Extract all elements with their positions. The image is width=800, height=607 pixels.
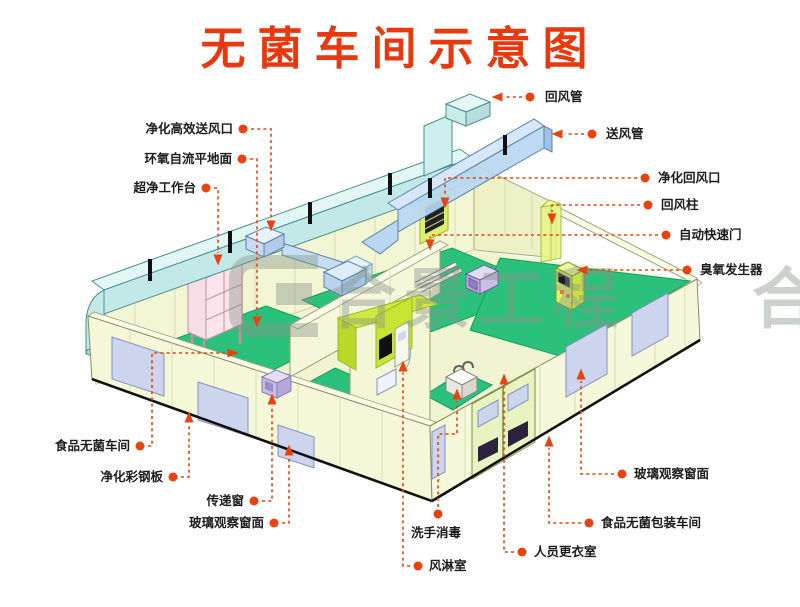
leader-arrow [545, 436, 554, 447]
label-text-air-shower: 风淋室 [429, 558, 467, 573]
leader-line [181, 424, 189, 477]
leader-dot [136, 442, 145, 451]
label-text-supply-duct: 送风管 [605, 126, 644, 141]
leader-line [251, 129, 271, 219]
label-group-ozone-generator: 臭氧发生器 [577, 262, 764, 277]
leader-dot [662, 231, 671, 240]
leader-line [549, 448, 581, 523]
label-text-hand-wash: 洗手消毒 [411, 525, 462, 540]
label-text-changing-room: 人员更衣室 [534, 544, 597, 559]
leader-dot [588, 130, 597, 139]
leader-dot [238, 155, 247, 164]
label-group-glass-window-left: 玻璃观察窗面 [189, 445, 294, 531]
leader-arrow [399, 361, 408, 372]
leader-arrow [441, 198, 450, 209]
leader-dot [270, 519, 279, 528]
leader-arrow [548, 214, 557, 225]
leader-arrow [453, 389, 462, 400]
label-text-packing-workshop: 食品无菌包装车间 [600, 515, 701, 530]
leader-arrow [214, 255, 223, 266]
label-text-return-air-column: 回风柱 [661, 197, 699, 212]
leader-line [403, 373, 410, 566]
leader-dot [683, 266, 692, 275]
label-group-supply-duct: 送风管 [552, 126, 644, 141]
leader-dot [618, 470, 627, 479]
label-group-return-duct: 回风管 [492, 89, 583, 104]
label-group-clean-bench: 超净工作台 [132, 180, 222, 266]
leader-dot [526, 93, 535, 102]
leader-line [148, 353, 226, 446]
leader-dot [434, 510, 443, 519]
leader-arrow [267, 221, 276, 232]
label-text-steel-panel: 净化彩钢板 [100, 469, 163, 484]
label-text-ozone-generator: 臭氧发生器 [700, 262, 763, 277]
label-group-sterile-workshop: 食品无菌车间 [54, 349, 239, 454]
label-group-return-air-column: 回风柱 [548, 197, 700, 225]
leader-line [430, 235, 658, 238]
leader-line [438, 401, 457, 507]
leader-line [250, 159, 257, 315]
label-text-hepa-supply-vent: 净化高效送风口 [145, 121, 233, 136]
label-group-hand-wash: 洗手消毒 [411, 389, 462, 541]
label-text-transfer-window: 传递窗 [205, 493, 244, 508]
leader-line [504, 386, 514, 552]
label-text-return-duct: 回风管 [545, 89, 583, 104]
leader-dot [518, 548, 527, 557]
leader-arrow [492, 93, 503, 102]
leader-line [581, 381, 614, 474]
leader-line [445, 178, 637, 196]
leader-arrow [577, 369, 586, 380]
diagram-page: 无菌车间示意图 [0, 0, 800, 607]
label-group-hepa-supply-vent: 净化高效送风口 [145, 121, 275, 232]
leader-arrow [228, 349, 239, 358]
leader-arrow [285, 445, 294, 456]
leader-dot [169, 473, 178, 482]
label-text-purifying-return-vent: 净化回风口 [658, 170, 721, 185]
label-group-packing-workshop: 食品无菌包装车间 [545, 436, 702, 531]
leader-dot [414, 562, 423, 571]
leader-arrow [185, 412, 194, 423]
label-text-glass-window-left: 玻璃观察窗面 [189, 515, 265, 530]
label-text-clean-bench: 超净工作台 [132, 180, 196, 195]
label-group-auto-rapid-door: 自动快速门 [426, 227, 742, 251]
leader-dot [239, 125, 248, 134]
label-group-transfer-window: 传递窗 [205, 394, 276, 509]
leader-arrow [426, 240, 435, 251]
leader-line [214, 188, 218, 253]
leader-arrow [552, 130, 563, 139]
label-text-auto-rapid-door: 自动快速门 [679, 227, 742, 242]
label-group-glass-window-right: 玻璃观察窗面 [577, 369, 710, 482]
leader-arrow [577, 266, 588, 275]
leader-arrow [253, 317, 262, 328]
leader-dot [585, 519, 594, 528]
leader-line [262, 406, 272, 501]
leader-dot [644, 201, 653, 210]
leader-dot [641, 174, 650, 183]
label-text-glass-window-right: 玻璃观察窗面 [634, 466, 710, 481]
leader-line [282, 457, 289, 523]
labels-overlay: 回风管送风管净化回风口回风柱自动快速门臭氧发生器玻璃观察窗面食品无菌包装车间人员… [0, 0, 800, 607]
label-text-epoxy-floor: 环氧自流平地面 [144, 151, 232, 166]
leader-arrow [500, 374, 509, 385]
leader-dot [202, 184, 211, 193]
leader-arrow [268, 394, 277, 405]
leader-line [552, 205, 640, 212]
leader-dot [250, 497, 259, 506]
label-text-sterile-workshop: 食品无菌车间 [54, 438, 130, 453]
label-group-epoxy-floor: 环氧自流平地面 [144, 151, 261, 328]
